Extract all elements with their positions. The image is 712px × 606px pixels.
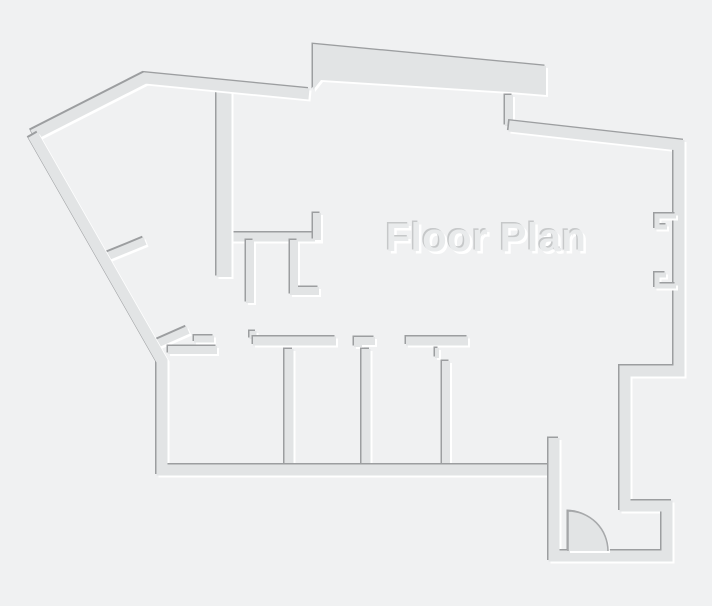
outline-west-south <box>33 135 556 470</box>
floor-plan-canvas: Floor Plan Floor Plan Floor Plan <box>0 0 712 606</box>
walls-layer <box>33 44 679 556</box>
plan-title: Floor Plan <box>386 216 587 260</box>
west-partition-lower <box>154 330 188 345</box>
north-band <box>313 44 546 95</box>
room3-header-step <box>358 341 375 347</box>
plan-title-group: Floor Plan Floor Plan Floor Plan <box>384 215 589 263</box>
outline-northwest <box>33 78 309 135</box>
kitchen-stub-right <box>294 240 319 291</box>
outline-east <box>509 126 679 556</box>
east-niche-upper <box>657 216 676 227</box>
entry-door <box>568 511 608 551</box>
east-niche-lower <box>657 275 676 286</box>
page: { "page": { "background": "#f0f1f2" }, "… <box>0 0 712 606</box>
